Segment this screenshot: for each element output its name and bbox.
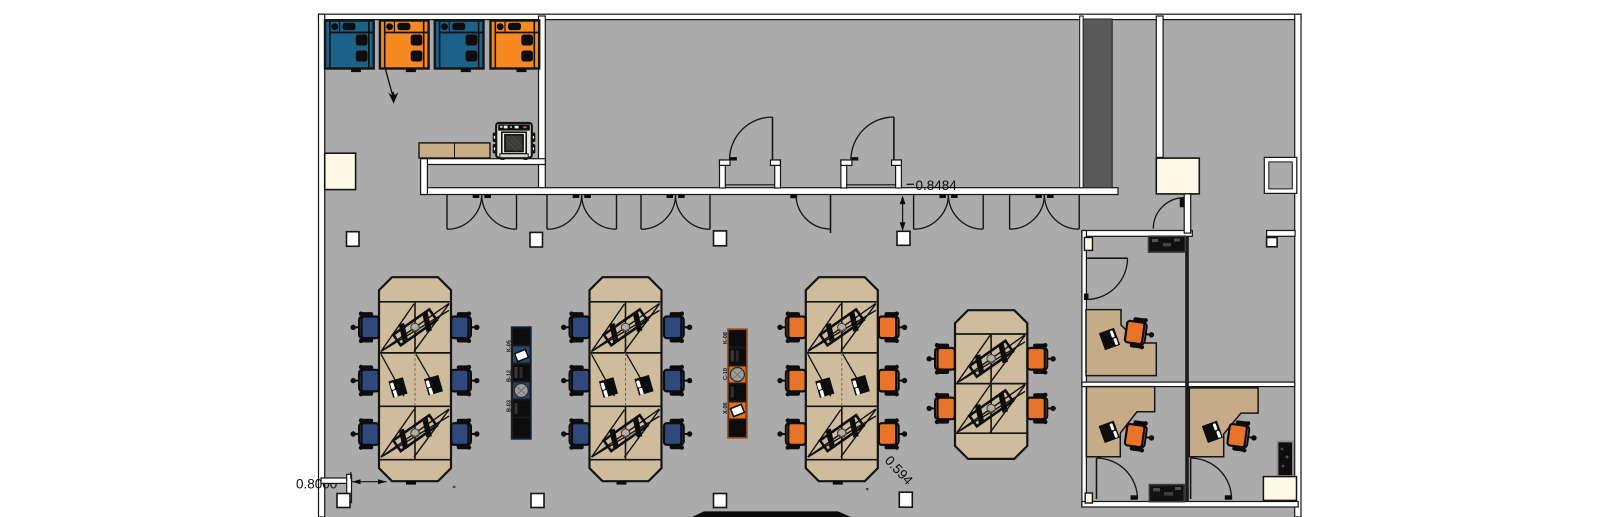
svg-text:K-08: K-08 — [723, 332, 729, 344]
svg-text:B-03: B-03 — [507, 400, 513, 412]
svg-text:0.8484: 0.8484 — [916, 178, 958, 193]
svg-text:C-10: C-10 — [723, 368, 729, 380]
svg-text:K-05: K-05 — [507, 340, 513, 352]
svg-text:B-12: B-12 — [507, 370, 513, 382]
svg-text:X-06: X-06 — [723, 402, 729, 414]
